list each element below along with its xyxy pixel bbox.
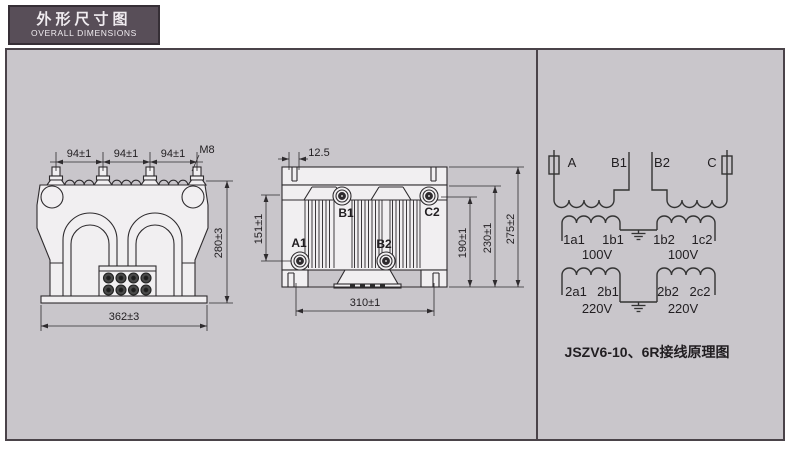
primary-coil-left xyxy=(554,200,614,208)
secondary2-coil-right xyxy=(657,268,715,275)
page: { "header": { "title_zh": "外形尺寸图", "titl… xyxy=(0,0,790,450)
front-terminal-bolts xyxy=(47,167,206,185)
dim-pitch-1: 94±1 xyxy=(67,148,91,160)
secondary1-label-1b1: 1b1 xyxy=(602,232,624,247)
secondary2-voltage-right: 220V xyxy=(668,301,699,316)
side-foot-left xyxy=(282,270,308,287)
side-top-bar xyxy=(282,167,447,185)
ground-symbol-1 xyxy=(632,234,646,240)
thread-label: M8 xyxy=(199,144,214,156)
terminal-label-b2: B2 xyxy=(376,237,392,251)
secondary1-voltage-right: 100V xyxy=(668,247,699,262)
secondary2-coil-left xyxy=(562,268,620,275)
dim-a1-height: 151±1 xyxy=(253,214,265,245)
primary-label-a: A xyxy=(568,155,577,170)
front-view xyxy=(37,167,208,303)
dim-mounting: 310±1 xyxy=(350,297,381,309)
secondary1-coil-right xyxy=(657,216,715,223)
secondary1-label-1a1: 1a1 xyxy=(563,232,585,247)
side-pedestal xyxy=(337,270,398,284)
secondary1-voltage-left: 100V xyxy=(582,247,613,262)
secondary1-label-1b2: 1b2 xyxy=(653,232,675,247)
primary-label-c: C xyxy=(707,155,716,170)
front-corner-boss-left xyxy=(41,186,63,208)
dim-offset: 12.5 xyxy=(308,147,329,159)
dim-h2: 230±1 xyxy=(482,223,494,254)
secondary2-voltage-left: 220V xyxy=(582,301,613,316)
terminal-label-c2: C2 xyxy=(424,205,440,219)
dim-width: 362±3 xyxy=(109,311,140,323)
front-ripples xyxy=(65,180,188,185)
dim-pitch-2: 94±1 xyxy=(114,148,138,160)
ground-symbol-2 xyxy=(632,306,646,312)
primary-label-b1: B1 xyxy=(611,155,627,170)
dim-pitch-3: 94±1 xyxy=(161,148,185,160)
schematic-caption: JSZV6-10、6R接线原理图 xyxy=(565,344,730,360)
front-corner-boss-right xyxy=(182,186,204,208)
dim-h3: 275±2 xyxy=(505,214,517,245)
dim-height: 280±3 xyxy=(213,228,225,259)
front-base-plate xyxy=(41,296,207,303)
schematic-labels: A B1 B2 C 1a1 1b1 1b2 1c2 100V 100V 2a1 … xyxy=(563,155,729,360)
secondary1-coil-left xyxy=(562,216,620,223)
dim-h1: 190±1 xyxy=(457,228,469,259)
terminal-label-b1: B1 xyxy=(338,206,354,220)
secondary2-label-2a1: 2a1 xyxy=(565,284,587,299)
terminal-label-a1: A1 xyxy=(291,236,307,250)
primary-label-b2: B2 xyxy=(654,155,670,170)
secondary2-label-2b1: 2b1 xyxy=(597,284,619,299)
drawing-canvas: 94±1 94±1 94±1 M8 280±3 362±3 xyxy=(0,0,790,450)
side-view xyxy=(282,167,447,288)
secondary2-label-2c2: 2c2 xyxy=(690,284,711,299)
secondary2-label-2b2: 2b2 xyxy=(657,284,679,299)
secondary1-label-1c2: 1c2 xyxy=(692,232,713,247)
primary-coil-right xyxy=(667,200,727,208)
